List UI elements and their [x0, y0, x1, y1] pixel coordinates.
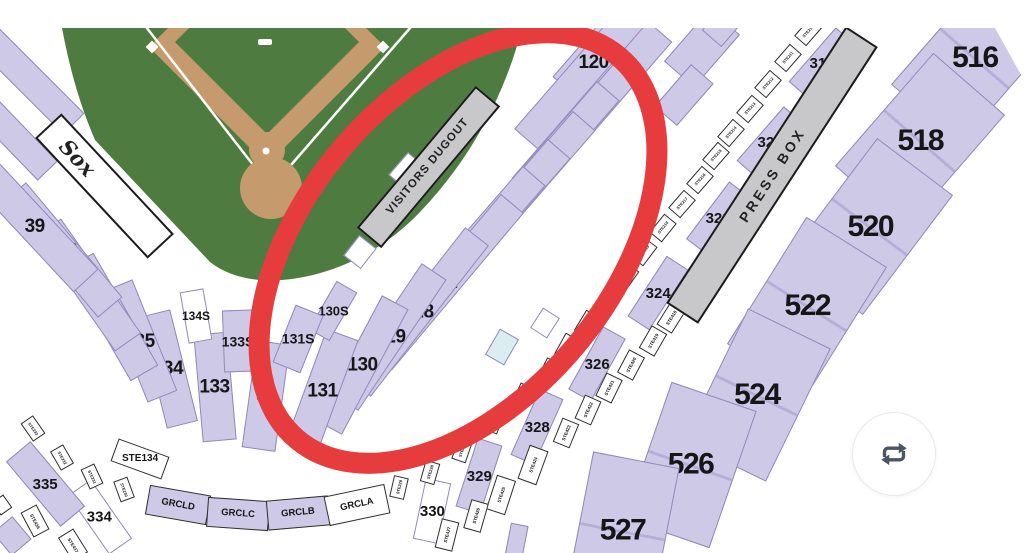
area-label: GRCLD — [161, 497, 196, 512]
area-label: STE425 — [496, 487, 505, 504]
area-label: STE218 — [657, 221, 669, 235]
area-ste419[interactable]: STE419 — [639, 325, 668, 357]
area-label: STE211 — [782, 51, 794, 64]
area-ste232[interactable]: STE232 — [50, 444, 74, 471]
area-527[interactable]: 527 — [565, 451, 679, 553]
area-label: STE216 — [694, 173, 707, 187]
area-label: STE223 — [562, 340, 573, 355]
area-ste134[interactable]: STE134 — [111, 438, 170, 479]
area-label: STE215 — [710, 149, 723, 163]
area-ste220[interactable]: STE220 — [613, 263, 640, 292]
area-grcld[interactable]: GRCLD — [145, 485, 211, 525]
area-ste217[interactable]: STE217 — [668, 190, 696, 219]
map-fragment — [530, 307, 560, 338]
area-label: STE222 — [582, 317, 593, 331]
area-label: 516 — [952, 43, 998, 73]
area-label: STE421 — [603, 380, 614, 397]
area-ste219[interactable]: STE219 — [630, 238, 657, 267]
stadium-seat-map: 1191201211221231241251261271281291301313… — [0, 0, 1024, 553]
area-label: 324 — [645, 286, 670, 301]
area-ste223[interactable]: STE223 — [554, 333, 580, 362]
area-label: GRCLC — [221, 508, 255, 520]
area-label: STE230 — [120, 482, 129, 497]
area-label: STE427 — [443, 527, 451, 544]
area-label: 522 — [784, 290, 830, 320]
area-label: 326 — [584, 357, 609, 372]
area-label: STE422 — [583, 402, 594, 419]
area-ste213[interactable]: STE213 — [736, 95, 764, 124]
area-label: 518 — [897, 125, 943, 155]
area-ste230[interactable]: STE230 — [113, 476, 135, 502]
area-ste212[interactable]: STE212 — [754, 70, 782, 99]
area-grclc[interactable]: GRCLC — [206, 497, 270, 531]
area-ste224[interactable]: STE224 — [537, 357, 560, 383]
area-label: STE437 — [67, 537, 79, 553]
area-label: STE233 — [27, 421, 39, 435]
area-335[interactable]: 335 — [5, 441, 84, 527]
area-label: GRCLB — [281, 507, 315, 519]
area-label: STE231 — [87, 469, 97, 484]
area-ste226[interactable]: STE226 — [483, 408, 505, 434]
map-fragment — [0, 494, 12, 515]
area-label: STE229 — [395, 480, 402, 495]
area-label: STE213 — [744, 102, 757, 116]
area-label: 520 — [847, 211, 893, 241]
area-ste211[interactable]: STE211 — [774, 44, 802, 73]
area-label: 133 — [200, 377, 230, 396]
area-label: STE228 — [426, 465, 434, 480]
area-label: 133S — [222, 334, 255, 348]
area-label: STE418 — [665, 310, 677, 326]
area-ste227[interactable]: STE227 — [451, 437, 472, 463]
area-label: STE212 — [762, 77, 775, 91]
area-ste422[interactable]: STE422 — [574, 394, 601, 425]
area-label: STE134 — [122, 454, 158, 464]
area-ste215[interactable]: STE215 — [702, 142, 730, 171]
area-ste221[interactable]: STE221 — [594, 287, 620, 316]
area-label: STE221 — [601, 294, 612, 308]
area-label: 328 — [524, 420, 549, 435]
area-label: STE224 — [544, 363, 554, 378]
map-fragment — [501, 523, 528, 553]
area-label: STE424 — [528, 457, 538, 474]
area-label: STE225 — [518, 388, 528, 403]
area-label: 330 — [419, 504, 444, 519]
map-fragment — [821, 0, 845, 19]
area-label: 329 — [466, 469, 491, 484]
area-label: STE220 — [620, 270, 632, 284]
area-134s[interactable]: 134S — [180, 288, 213, 343]
area-grclb[interactable]: GRCLB — [266, 495, 330, 530]
area-ste233[interactable]: STE233 — [21, 415, 46, 442]
area-label: STE423 — [561, 425, 571, 442]
area-label: STE419 — [647, 333, 659, 349]
area-label: STE226 — [489, 414, 498, 429]
refresh-map-button[interactable] — [852, 412, 936, 496]
area-label: STE426 — [472, 508, 481, 525]
area-ste420[interactable]: STE420 — [617, 349, 645, 380]
area-label: 131S — [282, 332, 315, 346]
area-label: 131 — [307, 382, 337, 401]
area-label: STE210 — [802, 25, 815, 39]
area-ste423[interactable]: STE423 — [553, 418, 579, 449]
area-label: STE217 — [676, 197, 689, 211]
area-ste229[interactable]: STE229 — [389, 475, 409, 500]
area-label: STE214 — [725, 126, 738, 140]
area-label: 120 — [578, 53, 608, 72]
area-133s[interactable]: 133S — [222, 309, 254, 372]
area-label: 527 — [599, 516, 645, 546]
area-label: STE436 — [29, 513, 41, 529]
area-label: 32 — [256, 387, 276, 406]
area-label: 134S — [182, 310, 210, 322]
area-grcla[interactable]: GRCLA — [324, 484, 391, 526]
area-label: 39 — [25, 216, 45, 235]
area-ste210[interactable]: STE210 — [794, 18, 822, 47]
area-label: STE420 — [625, 357, 637, 373]
area-label: STE227 — [458, 443, 466, 458]
area-ste216[interactable]: STE216 — [686, 166, 714, 195]
area-label: GRCLA — [339, 497, 374, 513]
area-ste222[interactable]: STE222 — [574, 310, 600, 339]
area-ste437[interactable]: STE437 — [58, 528, 88, 553]
area-ste225[interactable]: STE225 — [512, 382, 535, 408]
swap-arrows-icon — [875, 435, 913, 473]
area-label: 334 — [87, 510, 112, 525]
area-label: 335 — [32, 477, 57, 492]
map-fragment — [485, 329, 519, 366]
area-label: STE232 — [57, 450, 68, 465]
area-ste214[interactable]: STE214 — [717, 119, 745, 148]
area-label: STE219 — [638, 245, 650, 259]
area-ste218[interactable]: STE218 — [649, 214, 677, 243]
